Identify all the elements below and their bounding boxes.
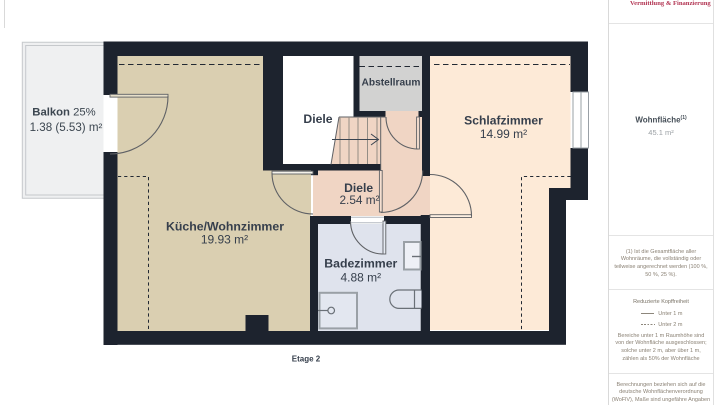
svg-text:Etage 2: Etage 2 (292, 354, 321, 363)
svg-text:19.93 m²: 19.93 m² (201, 233, 248, 247)
svg-text:Küche/Wohnzimmer: Küche/Wohnzimmer (166, 220, 284, 234)
svg-text:Balkon 25%: Balkon 25% (32, 107, 95, 119)
svg-text:2.54 m²: 2.54 m² (340, 193, 380, 207)
svg-text:Badezimmer: Badezimmer (324, 256, 397, 270)
svg-text:1.38 (5.53) m²: 1.38 (5.53) m² (30, 121, 103, 134)
svg-text:Diele: Diele (303, 112, 332, 126)
svg-text:14.99 m²: 14.99 m² (480, 127, 527, 141)
svg-text:Abstellraum: Abstellraum (362, 78, 421, 89)
svg-text:Schlafzimmer: Schlafzimmer (464, 114, 543, 128)
svg-text:4.88 m²: 4.88 m² (340, 271, 381, 285)
